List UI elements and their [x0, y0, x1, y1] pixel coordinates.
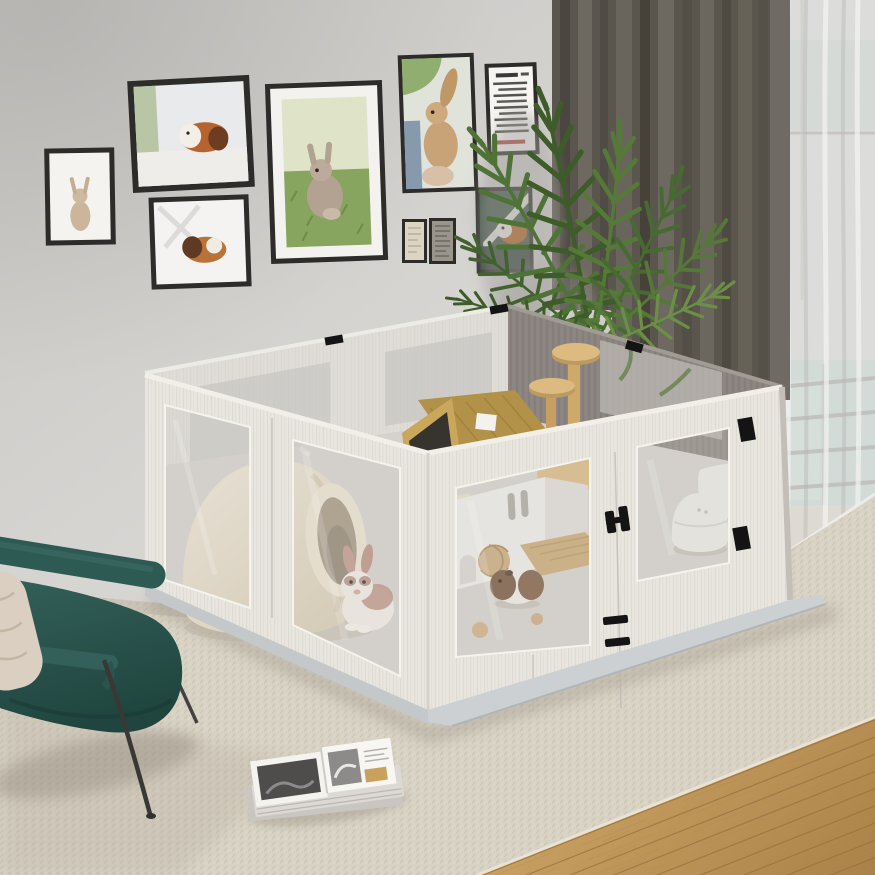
curtain-edge-light	[770, 0, 790, 400]
roof-label	[475, 413, 497, 431]
poster-text-row	[521, 72, 529, 75]
frame-rabbit-held	[398, 53, 479, 194]
scene-canvas	[0, 0, 875, 875]
photo-sill	[137, 147, 249, 187]
curtain-fold	[700, 0, 714, 400]
frame-guinea-windowsill	[127, 75, 255, 193]
curtain-fold	[758, 0, 768, 400]
acrylic-window	[456, 458, 590, 657]
curtain-fold	[682, 0, 692, 400]
tree-platform-top	[552, 343, 600, 361]
poster-title-bar	[496, 73, 518, 78]
tree-platform-mid	[529, 378, 575, 394]
frame-guinea-resting	[148, 194, 251, 289]
acrylic-window	[637, 428, 729, 581]
frame-rabbit-print	[44, 147, 116, 245]
frame-sketch-pair	[402, 218, 456, 264]
curtain-fold	[738, 0, 752, 400]
chair-leg-foot	[146, 813, 156, 819]
photo-clothing	[404, 121, 422, 190]
room-photo	[0, 0, 875, 875]
frame-bunny-grass	[265, 80, 388, 264]
curtain-fold	[722, 0, 731, 400]
